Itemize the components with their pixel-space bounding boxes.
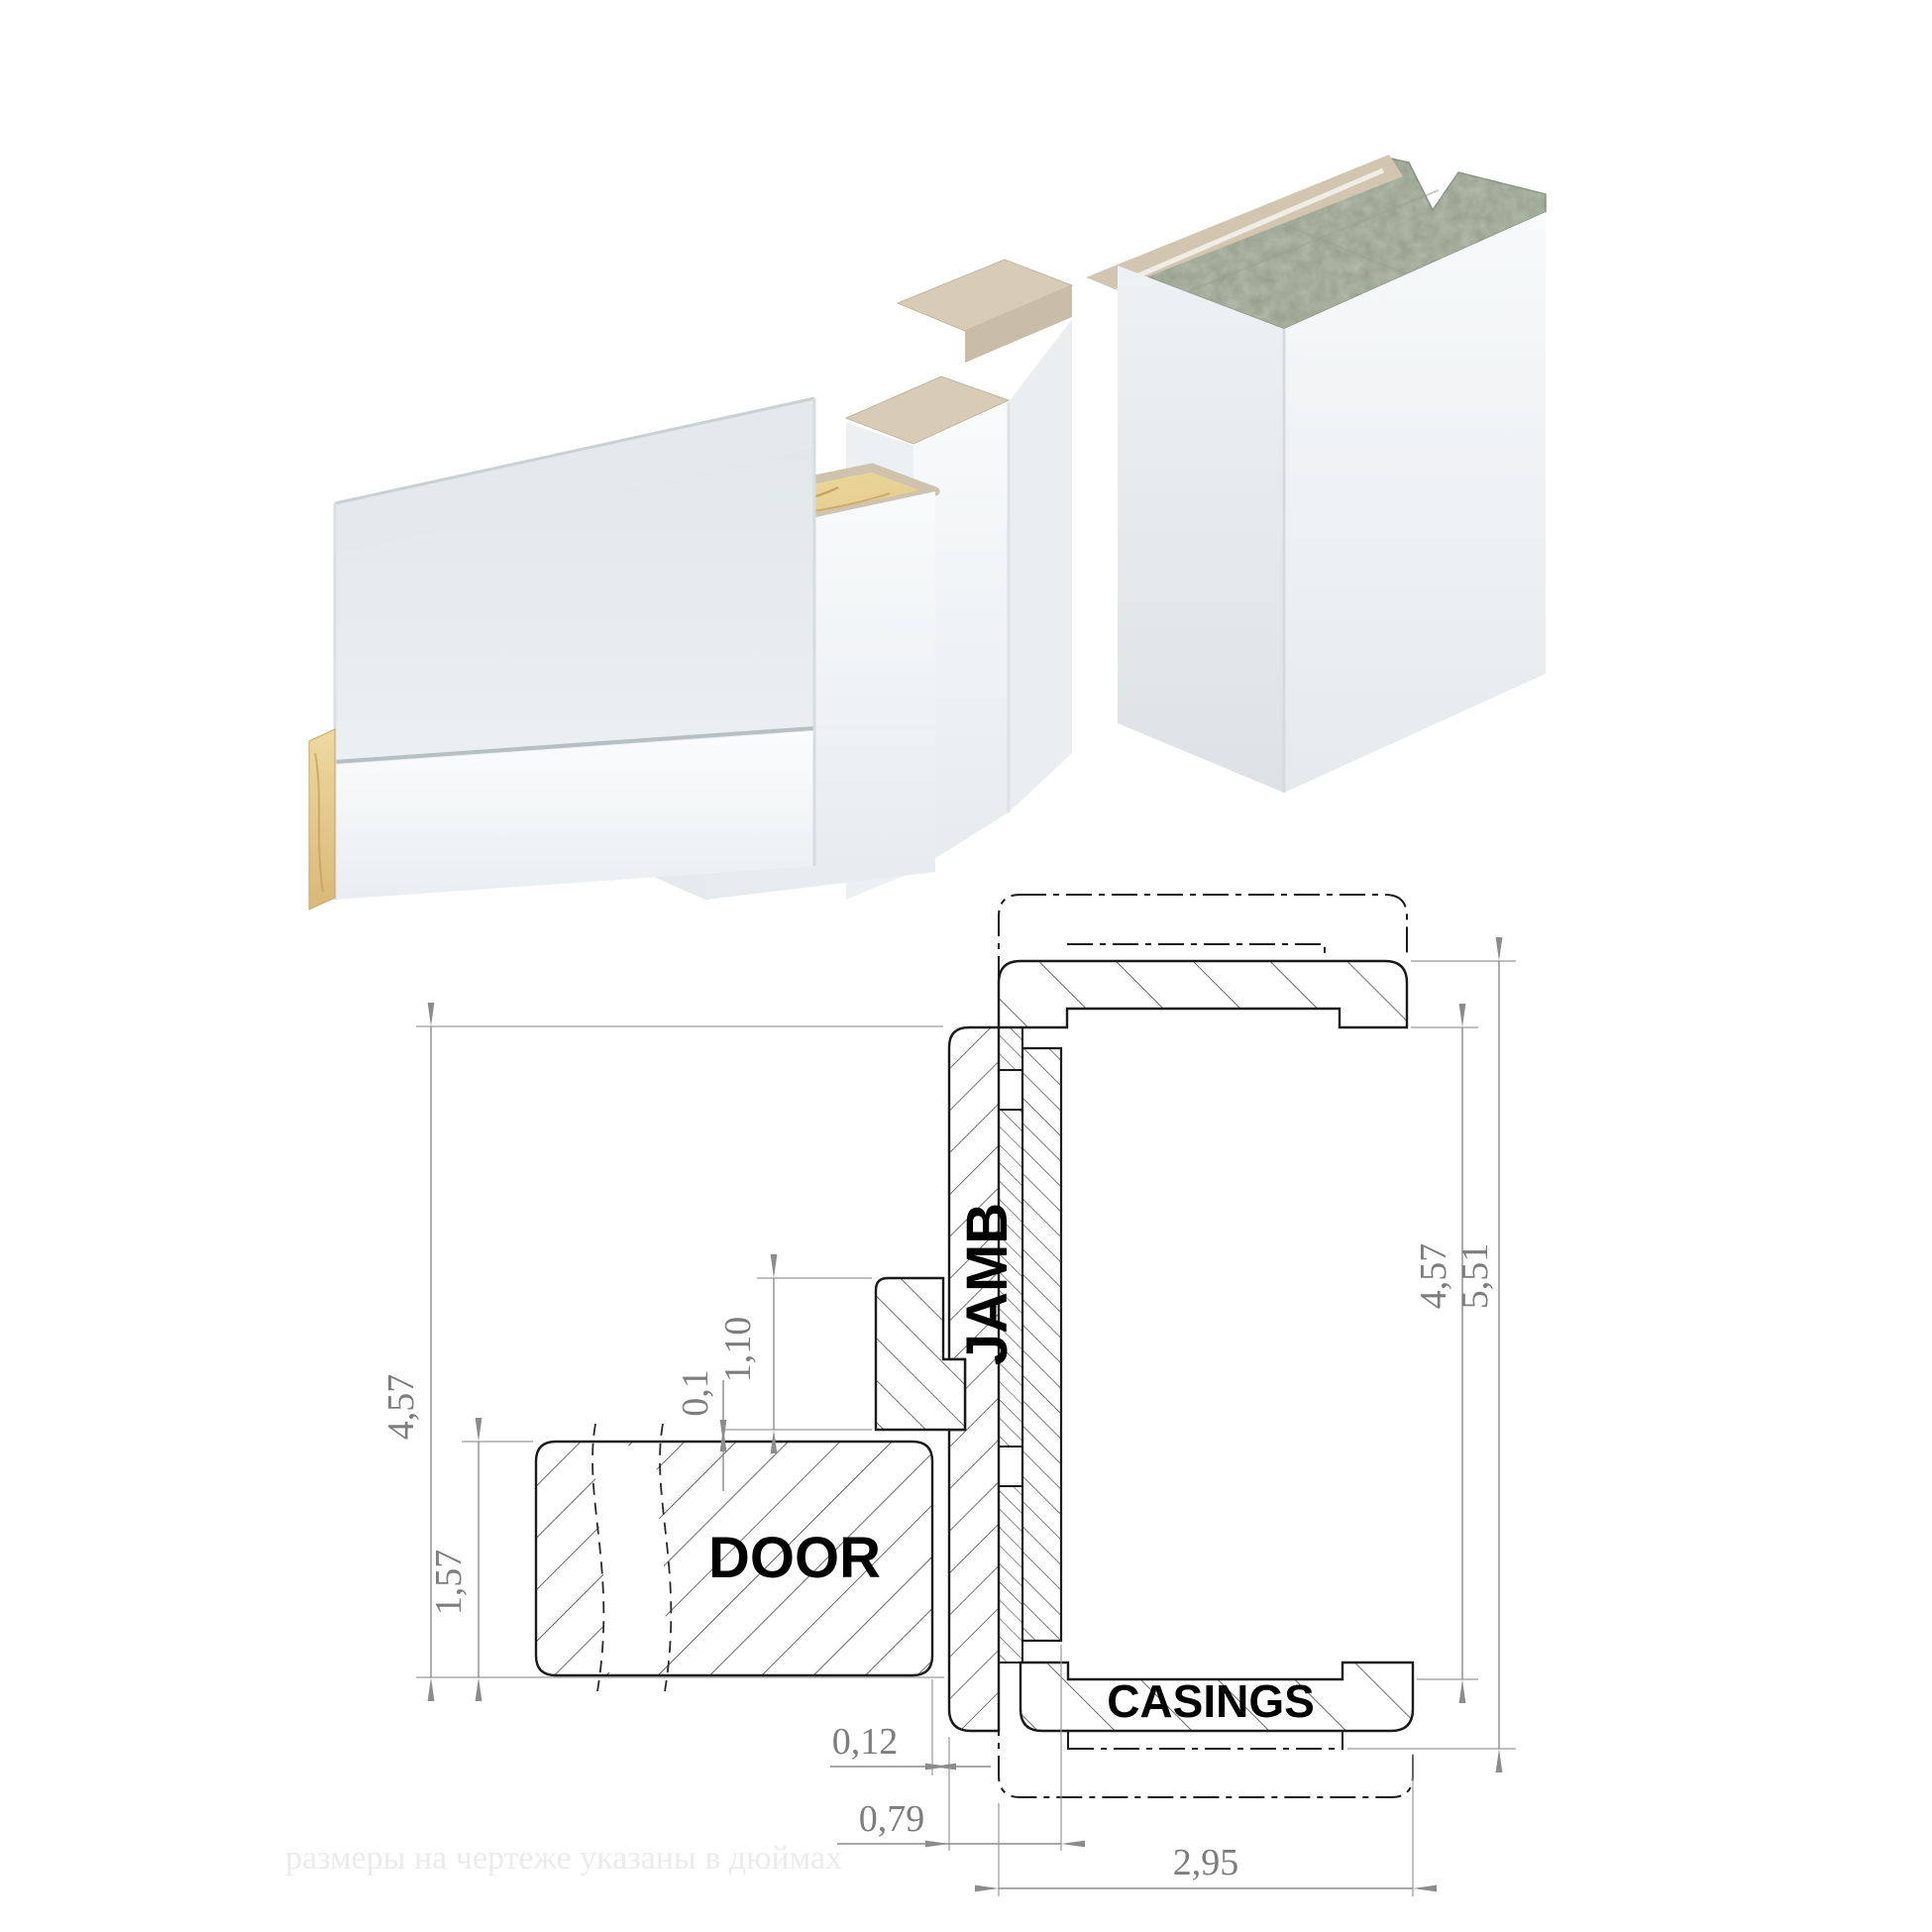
top-casing-section [999,961,1407,1027]
dim-left-outer-label: 4,57 [380,1374,422,1441]
jamb-extension-board [1022,1048,1061,1641]
drawing-2d: 4,57 1,57 1,10 0,1 0,12 0,79 2,95 4,57 5… [285,895,1516,1896]
scene: 4,57 1,57 1,10 0,1 0,12 0,79 2,95 4,57 5… [0,0,1932,1932]
door-break-band [595,1446,666,1672]
jamb-clip-strip-bottom [999,1486,1022,1663]
watermark-text: размеры на чертеже указаны в дюймах [285,1840,842,1877]
jamb-label: JAMB [955,1203,1020,1365]
jamb-clip-strip-top [999,1027,1022,1070]
dim-door-jamb-gap-label: 0,12 [832,1721,899,1763]
dim-right-inner-label: 4,57 [1413,1243,1454,1310]
render-3d [309,155,1546,910]
dim-door-thickness-label: 1,57 [428,1550,470,1616]
dim-seal-gap-label: 0,1 [675,1369,716,1417]
wall-face-left [1118,266,1284,793]
casings-label: CASINGS [1107,1675,1315,1727]
bottom-casing-tab [1068,1731,1342,1750]
screenshot-root: 4,57 1,57 1,10 0,1 0,12 0,79 2,95 4,57 5… [0,0,1932,1932]
door-label: DOOR [708,1526,881,1590]
jamb-front-right [1009,319,1072,812]
dim-casing-width-label: 2,95 [1173,1842,1239,1883]
dim-jamb-depth-label: 0,79 [859,1798,925,1840]
dim-stop-height-label: 1,10 [717,1317,759,1383]
dim-right-outer-label: 5,51 [1454,1243,1496,1310]
